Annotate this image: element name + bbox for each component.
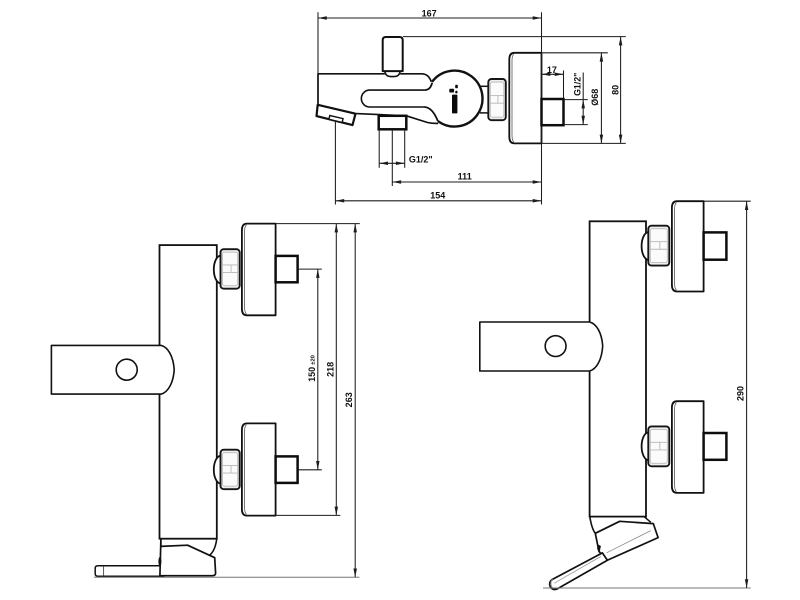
svg-text:G1/2": G1/2" <box>409 154 433 164</box>
svg-text:167: 167 <box>422 8 437 18</box>
svg-text:150: 150 <box>307 367 317 382</box>
svg-text:17: 17 <box>547 65 557 75</box>
svg-text:80: 80 <box>610 85 620 95</box>
svg-text:154: 154 <box>430 191 445 201</box>
svg-text:G1/2": G1/2" <box>572 73 582 96</box>
svg-text:±20: ±20 <box>311 355 317 365</box>
svg-text:Ø68: Ø68 <box>590 89 600 106</box>
svg-text:111: 111 <box>458 172 472 182</box>
svg-text:290: 290 <box>735 386 745 401</box>
svg-text:218: 218 <box>326 362 336 377</box>
svg-text:263: 263 <box>344 392 354 407</box>
